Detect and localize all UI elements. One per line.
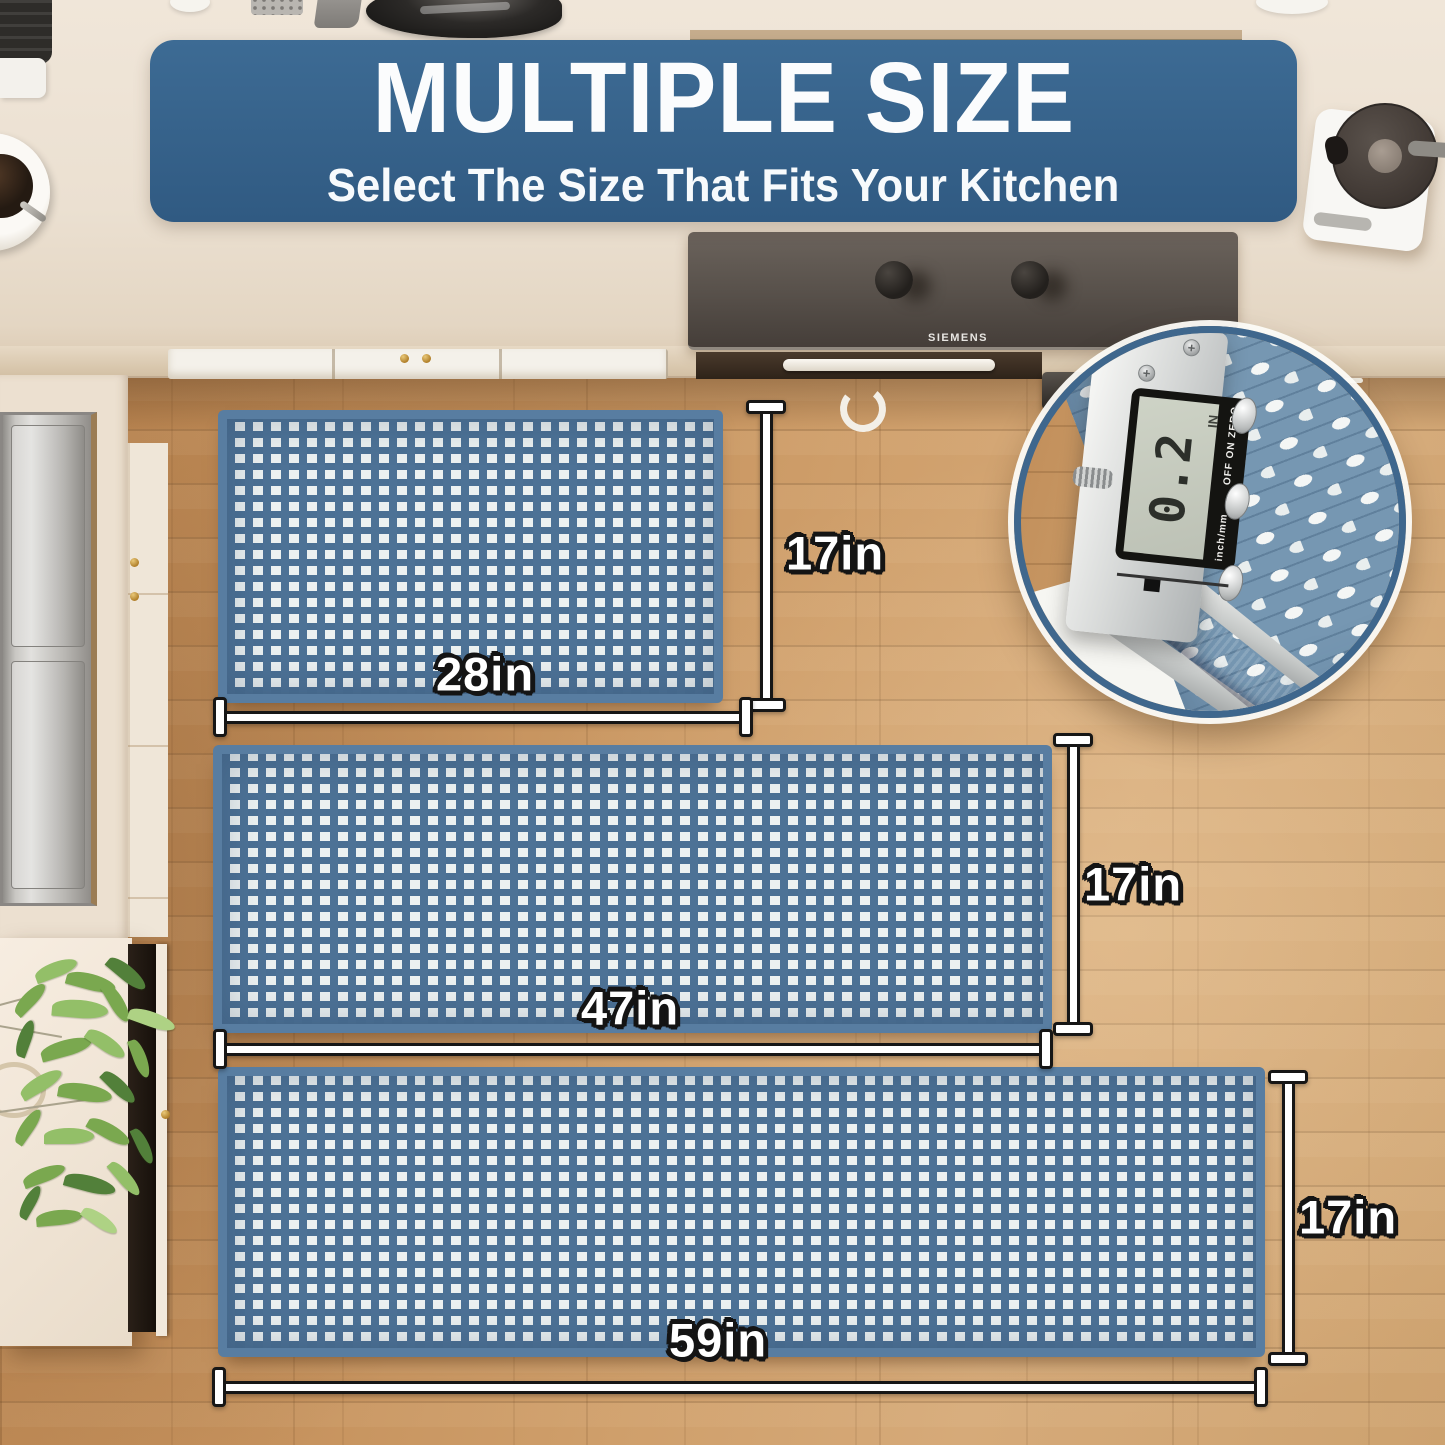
plant-leaf	[21, 1161, 67, 1189]
espresso-machine	[0, 0, 52, 64]
kettle-lid-knob	[1368, 139, 1402, 173]
plant-leaf	[35, 1208, 82, 1227]
screw-icon: +	[1182, 338, 1201, 357]
mat1-height-label: 17in	[786, 526, 884, 581]
banner-title: MULTIPLE SIZE	[372, 48, 1075, 148]
plant-leaf	[127, 1004, 177, 1035]
plant-leaf	[51, 998, 108, 1021]
tall-cabinet	[126, 443, 168, 937]
caliper-reading: 0.2	[1139, 429, 1204, 527]
stove-knob	[1011, 261, 1049, 299]
mat3-height-label: 17in	[1299, 1190, 1397, 1245]
cabinet-knob	[130, 592, 139, 601]
iron-stand	[314, 0, 363, 28]
caliper-mode-label: inch/mm	[1213, 513, 1229, 562]
plant-leaf	[44, 1128, 94, 1144]
plant-stem	[0, 1098, 92, 1119]
product-infographic: SIEMENS MULTIPLE SIZE Select The Size Th…	[0, 0, 1445, 1445]
stove-knob	[875, 261, 913, 299]
thickness-inset-photo: + + 0.2 IN inch/mm OFF ON ZERO	[1014, 326, 1406, 718]
digital-caliper: + + 0.2 IN inch/mm OFF ON ZERO	[1018, 326, 1340, 718]
plant-leaf	[63, 1170, 117, 1199]
banner: MULTIPLE SIZE Select The Size That Fits …	[150, 40, 1297, 222]
cabinet-knob	[400, 354, 409, 363]
plant-leaf	[127, 1037, 153, 1079]
metal-tray	[251, 0, 303, 15]
screw-icon: +	[1137, 364, 1156, 383]
mat2-width-label: 47in	[581, 981, 679, 1036]
plant-leaf	[130, 1126, 157, 1166]
width-dimension-line	[213, 697, 753, 737]
height-dimension-line	[746, 400, 786, 712]
caliper-unit: IN	[1205, 414, 1221, 428]
mat2-height-label: 17in	[1084, 857, 1182, 912]
mat1-width-label: 28in	[436, 647, 534, 702]
cabinet-knob	[130, 558, 139, 567]
cabinet-knob	[422, 354, 431, 363]
caliper-screen: 0.2 IN	[1123, 396, 1219, 560]
plant-leaf	[85, 1114, 132, 1150]
cabinet-fronts	[168, 349, 668, 379]
caliper-thumbwheel	[1072, 466, 1114, 490]
caliper-detail-line	[1117, 573, 1229, 588]
mat3-width-label: 59in	[669, 1313, 767, 1368]
banner-subtitle: Select The Size That Fits Your Kitchen	[327, 162, 1119, 208]
potted-plant	[0, 940, 200, 1260]
width-dimension-line	[212, 1367, 1268, 1407]
plant-leaf	[12, 1018, 37, 1058]
stainless-appliance	[0, 412, 97, 906]
hood-brand-label: SIEMENS	[928, 332, 988, 344]
kettle-base-slot	[1313, 212, 1372, 232]
plant-leaf	[11, 1106, 45, 1146]
espresso-machine-base	[0, 58, 46, 98]
plant-leaf	[80, 1204, 120, 1238]
towel-bar	[783, 359, 995, 371]
